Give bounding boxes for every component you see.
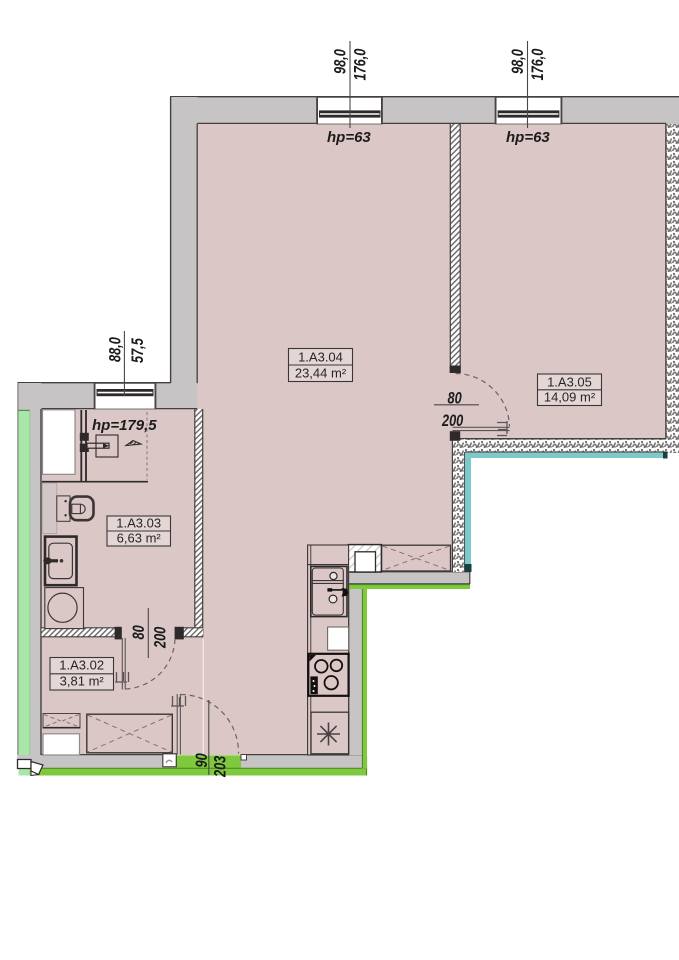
svg-text:1.A3.03: 1.A3.03 [116,516,161,531]
svg-text:1.A3.02: 1.A3.02 [59,658,104,673]
svg-text:98,0: 98,0 [331,49,350,74]
svg-text:200: 200 [151,626,170,649]
svg-text:6,63 m²: 6,63 m² [117,531,162,546]
svg-text:23,44 m²: 23,44 m² [295,366,347,381]
svg-text:hp=63: hp=63 [506,129,550,146]
svg-text:98,0: 98,0 [508,49,527,74]
svg-text:80: 80 [129,625,148,640]
svg-text:1.A3.05: 1.A3.05 [547,375,592,390]
svg-text:3,81 m²: 3,81 m² [60,674,105,689]
svg-text:203: 203 [211,755,230,778]
svg-text:200: 200 [441,411,464,430]
svg-text:88,0: 88,0 [106,337,125,362]
svg-text:1.A3.04: 1.A3.04 [298,350,343,365]
svg-text:176,0: 176,0 [351,48,370,80]
svg-text:176,0: 176,0 [528,48,547,80]
svg-text:hp=179,5: hp=179,5 [92,417,157,434]
svg-text:14,09 m²: 14,09 m² [544,390,596,405]
svg-text:57,5: 57,5 [128,338,147,363]
svg-text:hp=63: hp=63 [327,129,371,146]
